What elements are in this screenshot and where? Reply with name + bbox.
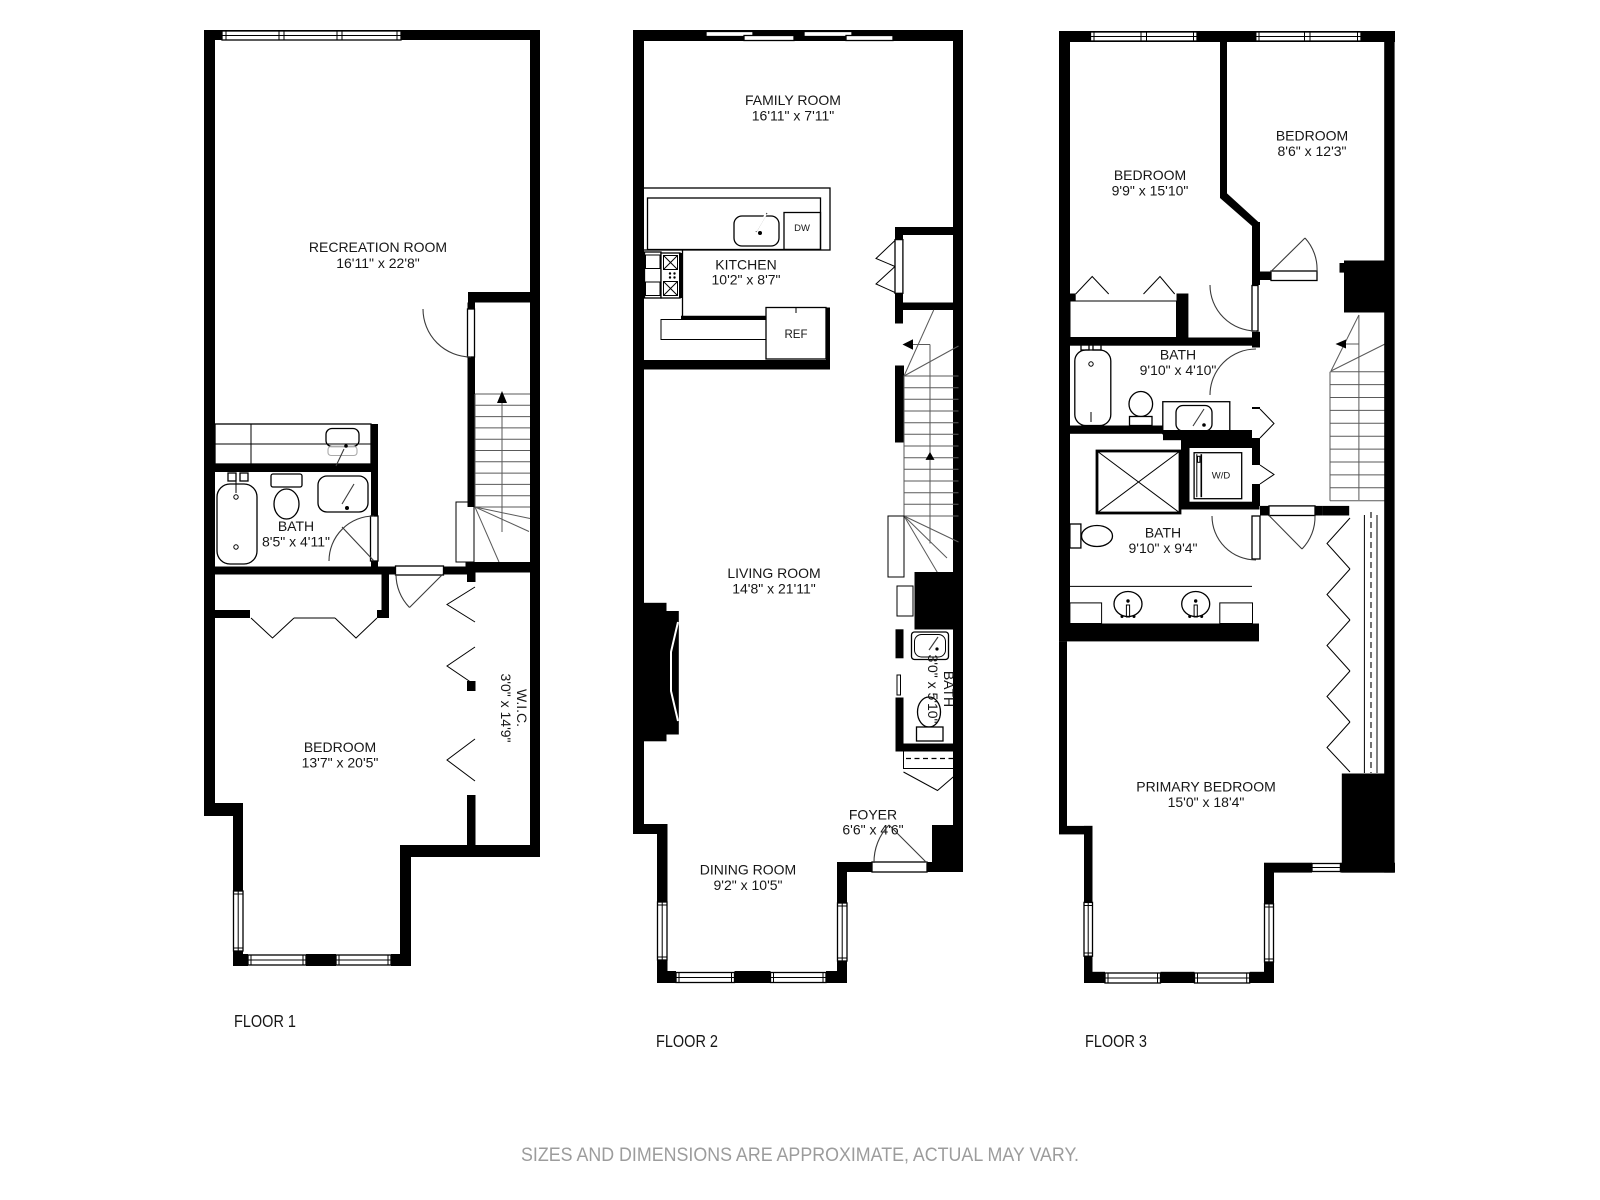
svg-text:9'10" x 9'4": 9'10" x 9'4" <box>1129 540 1198 556</box>
svg-text:15'0" x 18'4": 15'0" x 18'4" <box>1168 794 1245 810</box>
svg-text:FAMILY ROOM: FAMILY ROOM <box>745 92 841 108</box>
svg-text:BATH: BATH <box>1160 347 1196 363</box>
svg-text:8'5" x 4'11": 8'5" x 4'11" <box>262 534 330 550</box>
svg-text:DINING ROOM: DINING ROOM <box>700 862 796 878</box>
svg-text:14'8" x 21'11": 14'8" x 21'11" <box>732 581 816 597</box>
svg-text:FLOOR 3: FLOOR 3 <box>1085 1031 1147 1051</box>
svg-text:LIVING ROOM: LIVING ROOM <box>727 565 820 581</box>
svg-text:13'7" x 20'5": 13'7" x 20'5" <box>302 755 379 771</box>
svg-text:BEDROOM: BEDROOM <box>304 739 376 755</box>
svg-text:6'6" x 4'6": 6'6" x 4'6" <box>842 822 903 838</box>
svg-text:FLOOR 1: FLOOR 1 <box>234 1011 296 1031</box>
svg-text:SIZES AND DIMENSIONS ARE APPRO: SIZES AND DIMENSIONS ARE APPROXIMATE, AC… <box>521 1144 1079 1166</box>
svg-text:3'0" x 5'10": 3'0" x 5'10" <box>925 655 941 724</box>
svg-text:BEDROOM: BEDROOM <box>1114 167 1186 183</box>
svg-text:W.I.C.: W.I.C. <box>514 689 530 727</box>
svg-text:FLOOR 2: FLOOR 2 <box>656 1031 718 1051</box>
svg-text:W/D: W/D <box>1212 471 1231 482</box>
svg-text:8'6" x 12'3": 8'6" x 12'3" <box>1278 143 1347 159</box>
svg-text:PRIMARY BEDROOM: PRIMARY BEDROOM <box>1136 779 1276 795</box>
svg-text:9'10" x 4'10": 9'10" x 4'10" <box>1140 362 1217 378</box>
svg-text:BATH: BATH <box>941 671 957 707</box>
svg-text:RECREATION ROOM: RECREATION ROOM <box>309 239 447 255</box>
svg-text:REF: REF <box>785 329 808 341</box>
svg-text:9'2" x 10'5": 9'2" x 10'5" <box>714 877 783 893</box>
svg-text:KITCHEN: KITCHEN <box>715 257 776 273</box>
svg-text:10'2" x 8'7": 10'2" x 8'7" <box>712 272 781 288</box>
svg-text:16'11" x 7'11": 16'11" x 7'11" <box>752 108 835 124</box>
svg-text:DW: DW <box>794 223 810 234</box>
svg-text:FOYER: FOYER <box>849 807 897 823</box>
svg-text:9'9" x 15'10": 9'9" x 15'10" <box>1112 183 1189 199</box>
svg-text:16'11" x 22'8": 16'11" x 22'8" <box>336 255 420 271</box>
svg-text:BATH: BATH <box>278 518 314 534</box>
svg-text:3'0" x 14'9": 3'0" x 14'9" <box>498 674 514 743</box>
svg-text:BATH: BATH <box>1145 525 1181 541</box>
svg-text:BEDROOM: BEDROOM <box>1276 128 1348 144</box>
